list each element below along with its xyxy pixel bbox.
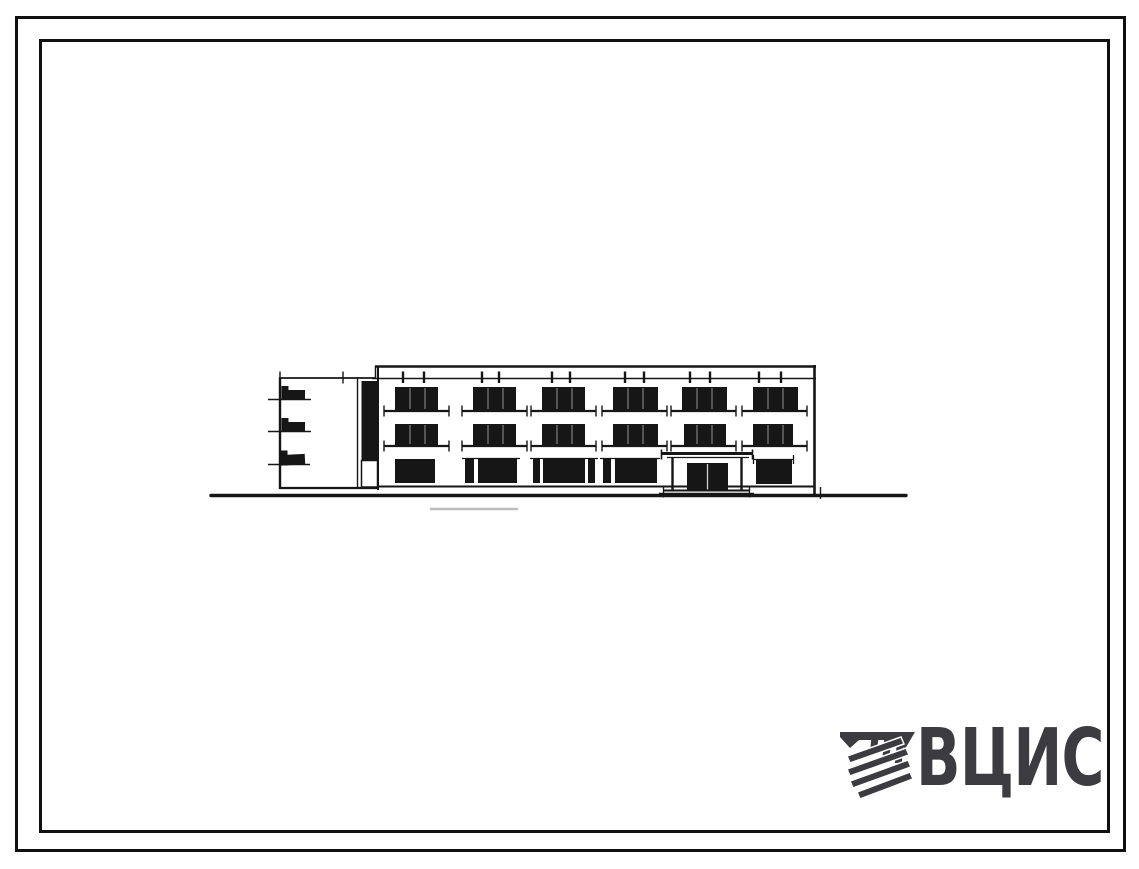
windows-second-floor xyxy=(395,424,793,446)
ground-line xyxy=(211,487,906,509)
vcis-logo-text: ВЦИС xyxy=(916,719,1104,798)
entrance-steps xyxy=(659,491,754,494)
entrance-porch xyxy=(659,450,754,498)
stairwell-glazing-strip xyxy=(362,381,378,460)
balcony-end-marks xyxy=(268,386,311,466)
sills-second-floor xyxy=(384,441,807,452)
stairwell-lower-panel xyxy=(362,461,378,488)
sills-third-floor xyxy=(384,406,807,417)
diagonal-striped-emblem-icon xyxy=(838,723,928,813)
roof-vent-ticks xyxy=(403,372,781,384)
vcis-logo: ВЦИС xyxy=(836,716,1098,816)
windows-first-floor xyxy=(395,455,794,484)
